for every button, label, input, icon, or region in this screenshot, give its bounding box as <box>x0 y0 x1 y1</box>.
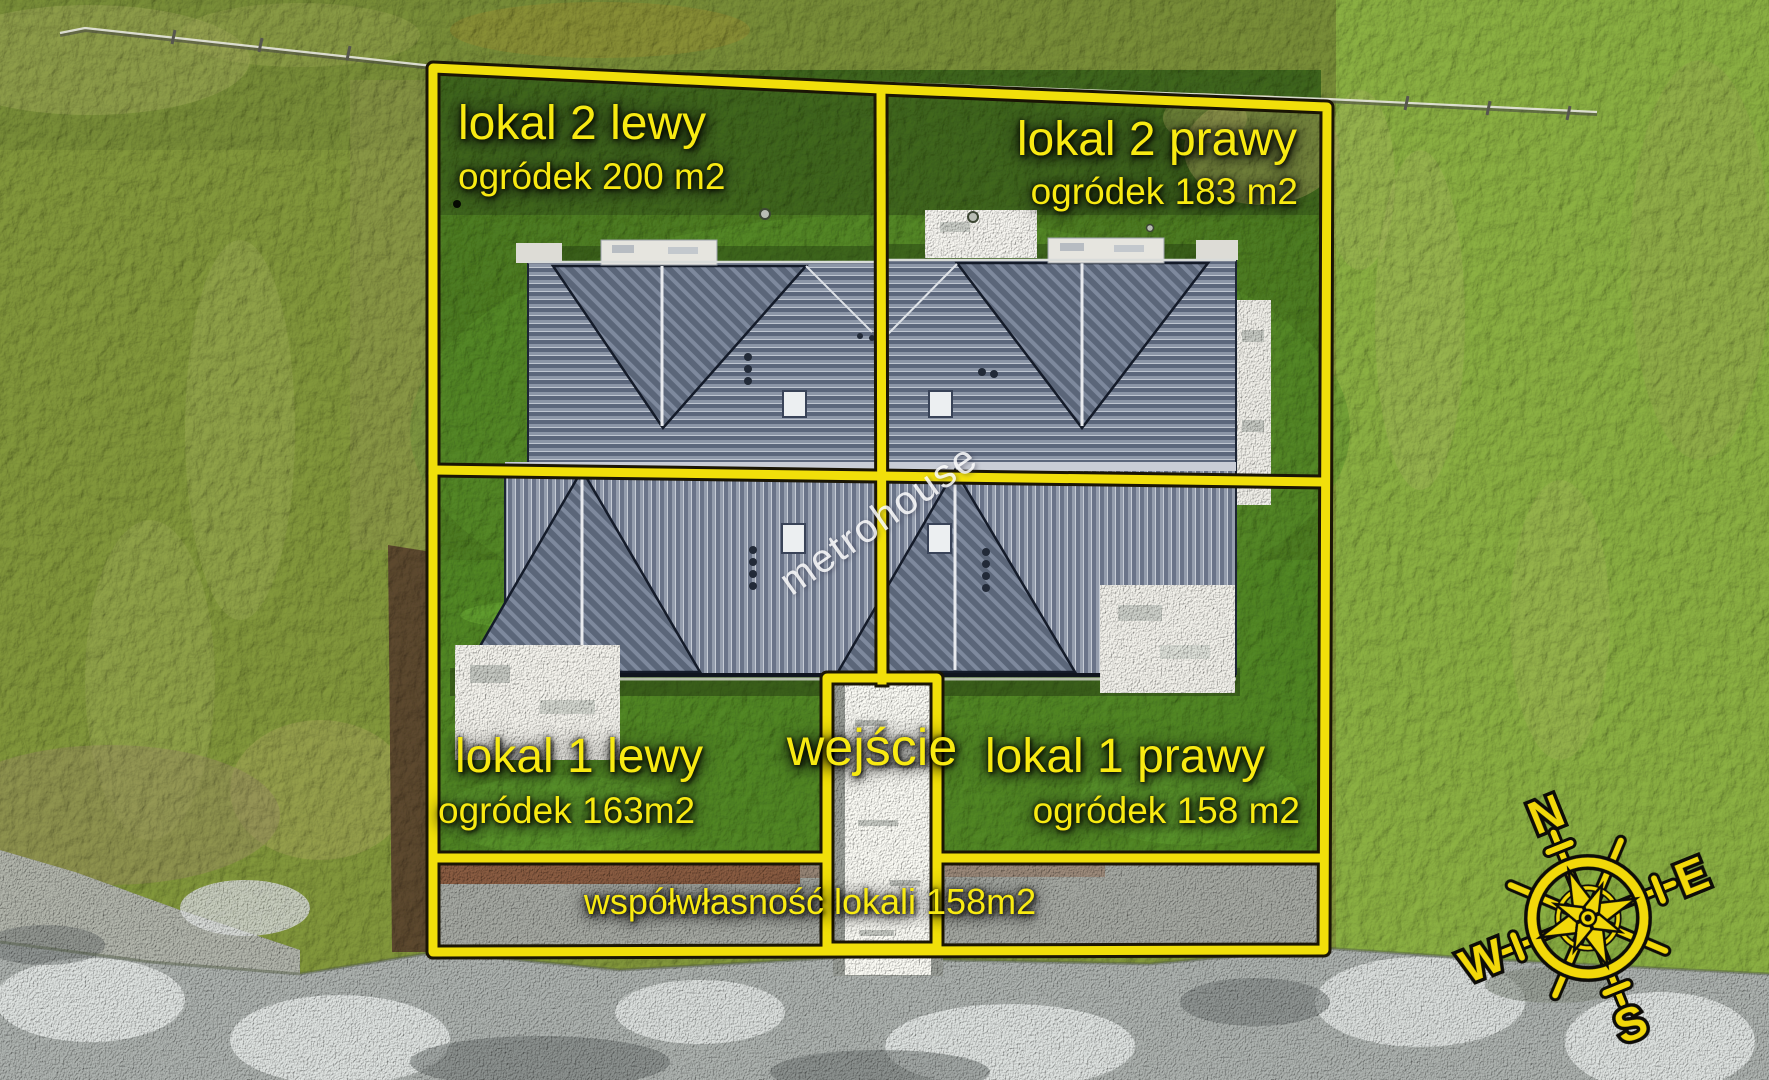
skylight <box>929 391 952 417</box>
plot-area-lokal-2-prawy: ogródek 183 m2 <box>1031 173 1298 211</box>
plot-area-lokal-1-lewy: ogródek 163m2 <box>438 792 695 830</box>
plot-area-lokal-2-lewy: ogródek 200 m2 <box>458 158 725 196</box>
divider-vertical <box>881 90 882 680</box>
plot-area-lokal-1-prawy: ogródek 158 m2 <box>1033 792 1300 830</box>
plot-label-lokal-2-prawy: lokal 2 prawy <box>1017 116 1297 165</box>
plot-label-lokal-1-lewy: lokal 1 lewy <box>455 733 703 782</box>
skylight <box>928 524 951 553</box>
skylight <box>783 391 806 417</box>
entrance-label: wejście <box>787 722 958 775</box>
plot-label-lokal-1-prawy: lokal 1 prawy <box>985 733 1265 782</box>
shared-area-label: współwłasność lokali 158m2 <box>584 884 1036 921</box>
plot-label-lokal-2-lewy: lokal 2 lewy <box>458 100 706 149</box>
annotated-aerial-photo: N E S W lokal 2 lewy ogródek 200 m2 loka… <box>0 0 1769 1080</box>
